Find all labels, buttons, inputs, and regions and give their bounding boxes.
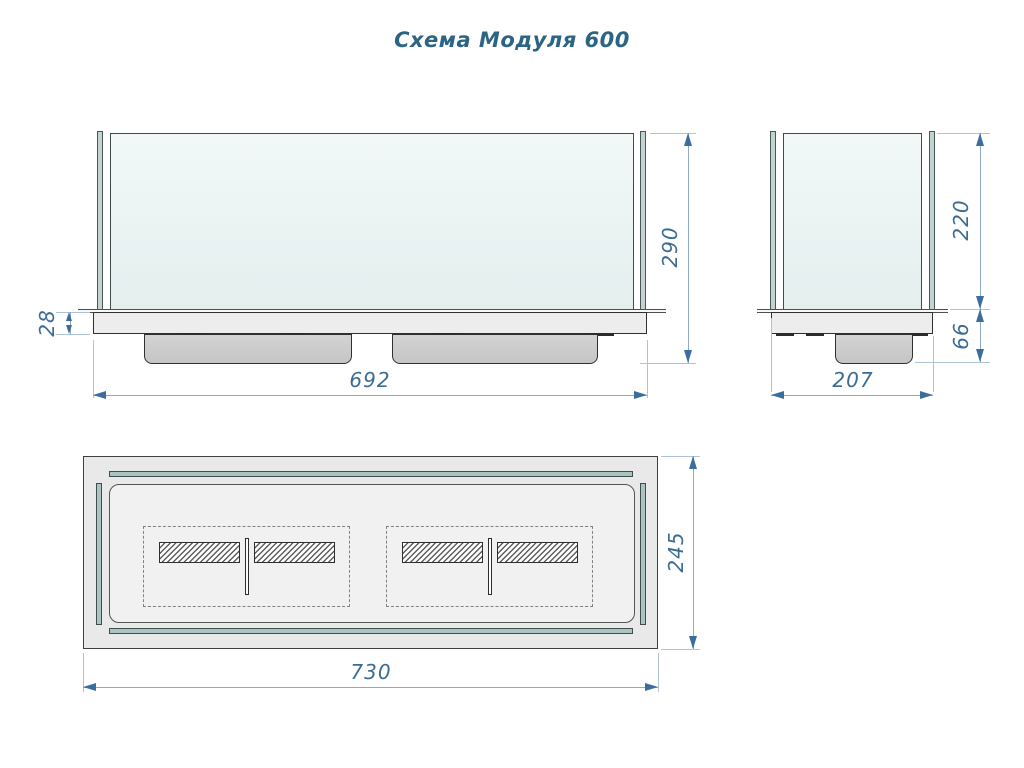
dim-top-width: 730 — [311, 660, 431, 684]
dim-side-width: 207 — [793, 368, 913, 392]
fastener-tick — [806, 333, 824, 336]
mounting-flange-side — [757, 309, 948, 313]
burner-tray — [109, 484, 635, 623]
glass-strip-back — [109, 628, 633, 634]
extension-line — [661, 649, 700, 650]
dim-arrow-down-icon — [684, 350, 692, 363]
extension-line — [661, 456, 700, 457]
fastener-tick — [776, 333, 794, 336]
dim-arrow-left-icon — [93, 391, 106, 399]
mounting-flange-front — [78, 309, 666, 313]
dim-base-height: 28 — [35, 283, 59, 363]
extension-line — [640, 363, 696, 364]
glass-edge-back — [929, 131, 935, 312]
module-body-outline — [83, 456, 658, 649]
extension-line — [56, 334, 90, 335]
dim-arrow-left-icon — [83, 683, 96, 691]
slot-divider-left — [245, 538, 249, 595]
extension-line — [56, 312, 90, 313]
dim-top-depth: 245 — [664, 512, 688, 592]
extension-line — [647, 340, 648, 398]
dim-arrow-down-icon — [976, 349, 984, 362]
dimension-line — [980, 133, 981, 309]
dim-side-glass-height: 220 — [949, 180, 973, 260]
burner-slot — [159, 542, 240, 563]
burner-slot — [497, 542, 578, 563]
dimension-line — [688, 133, 689, 363]
dim-arrow-left-icon — [771, 391, 784, 399]
dim-arrow-up-icon — [976, 309, 984, 322]
drawing-canvas: Схема Модуля 600 692 290 28 — [0, 0, 1024, 768]
dim-arrow-up-icon — [976, 133, 984, 146]
burner-base-front — [93, 312, 647, 334]
burner-slot — [402, 542, 483, 563]
extension-line — [933, 336, 934, 392]
extension-line — [93, 340, 94, 398]
burner-slot — [254, 542, 335, 563]
side-view: 220 66 207 — [0, 0, 1024, 768]
slot-divider-right — [488, 538, 492, 595]
burner-base-side — [771, 312, 933, 334]
glass-edge-front — [770, 131, 776, 312]
glass-strip-front — [109, 471, 633, 477]
dim-front-width: 692 — [310, 368, 430, 392]
tank-footprint-right — [386, 526, 593, 607]
extension-line — [658, 653, 659, 692]
extension-line — [937, 133, 990, 134]
extension-line — [83, 653, 84, 692]
extension-line — [771, 318, 772, 392]
dimension-line — [70, 312, 71, 334]
glass-panel-front — [110, 133, 634, 310]
glass-strip-right — [640, 483, 646, 625]
dim-arrow-down-icon — [976, 296, 984, 309]
fastener-tick — [433, 333, 461, 336]
fastener-tick — [283, 333, 307, 336]
fastener-tick — [588, 333, 614, 336]
dimension-line — [693, 456, 694, 649]
glass-edge-right — [640, 131, 646, 312]
dimension-line — [771, 395, 933, 396]
glass-panel-side — [783, 133, 922, 310]
extension-line — [650, 133, 696, 134]
front-view: 692 290 28 — [0, 0, 1024, 768]
glass-strip-left — [96, 483, 102, 625]
dim-arrow-right-icon — [634, 391, 647, 399]
dim-arrow-right-icon — [920, 391, 933, 399]
dim-arrow-down-icon — [689, 636, 697, 649]
fuel-tank-right — [392, 334, 598, 364]
drawing-title: Схема Модуля 600 — [262, 28, 762, 52]
dim-arrow-up-icon — [684, 133, 692, 146]
dimension-line — [83, 687, 658, 688]
dim-arrow-up-icon — [66, 312, 72, 321]
glass-edge-left — [97, 131, 103, 312]
tank-footprint-left — [143, 526, 350, 607]
dim-arrow-up-icon — [689, 456, 697, 469]
fastener-tick — [178, 333, 204, 336]
fuel-tank-left — [144, 334, 352, 364]
top-view: 245 730 — [0, 0, 1024, 768]
dimension-line — [93, 395, 647, 396]
dim-side-under-height: 66 — [949, 296, 973, 376]
dimension-line — [980, 309, 981, 362]
dim-arrow-down-icon — [66, 325, 72, 334]
fastener-tick — [910, 333, 928, 336]
fuel-tank-side — [835, 334, 913, 364]
extension-line — [915, 362, 990, 363]
extension-line — [950, 309, 990, 310]
dim-arrow-right-icon — [645, 683, 658, 691]
dim-front-height: 290 — [658, 207, 682, 287]
